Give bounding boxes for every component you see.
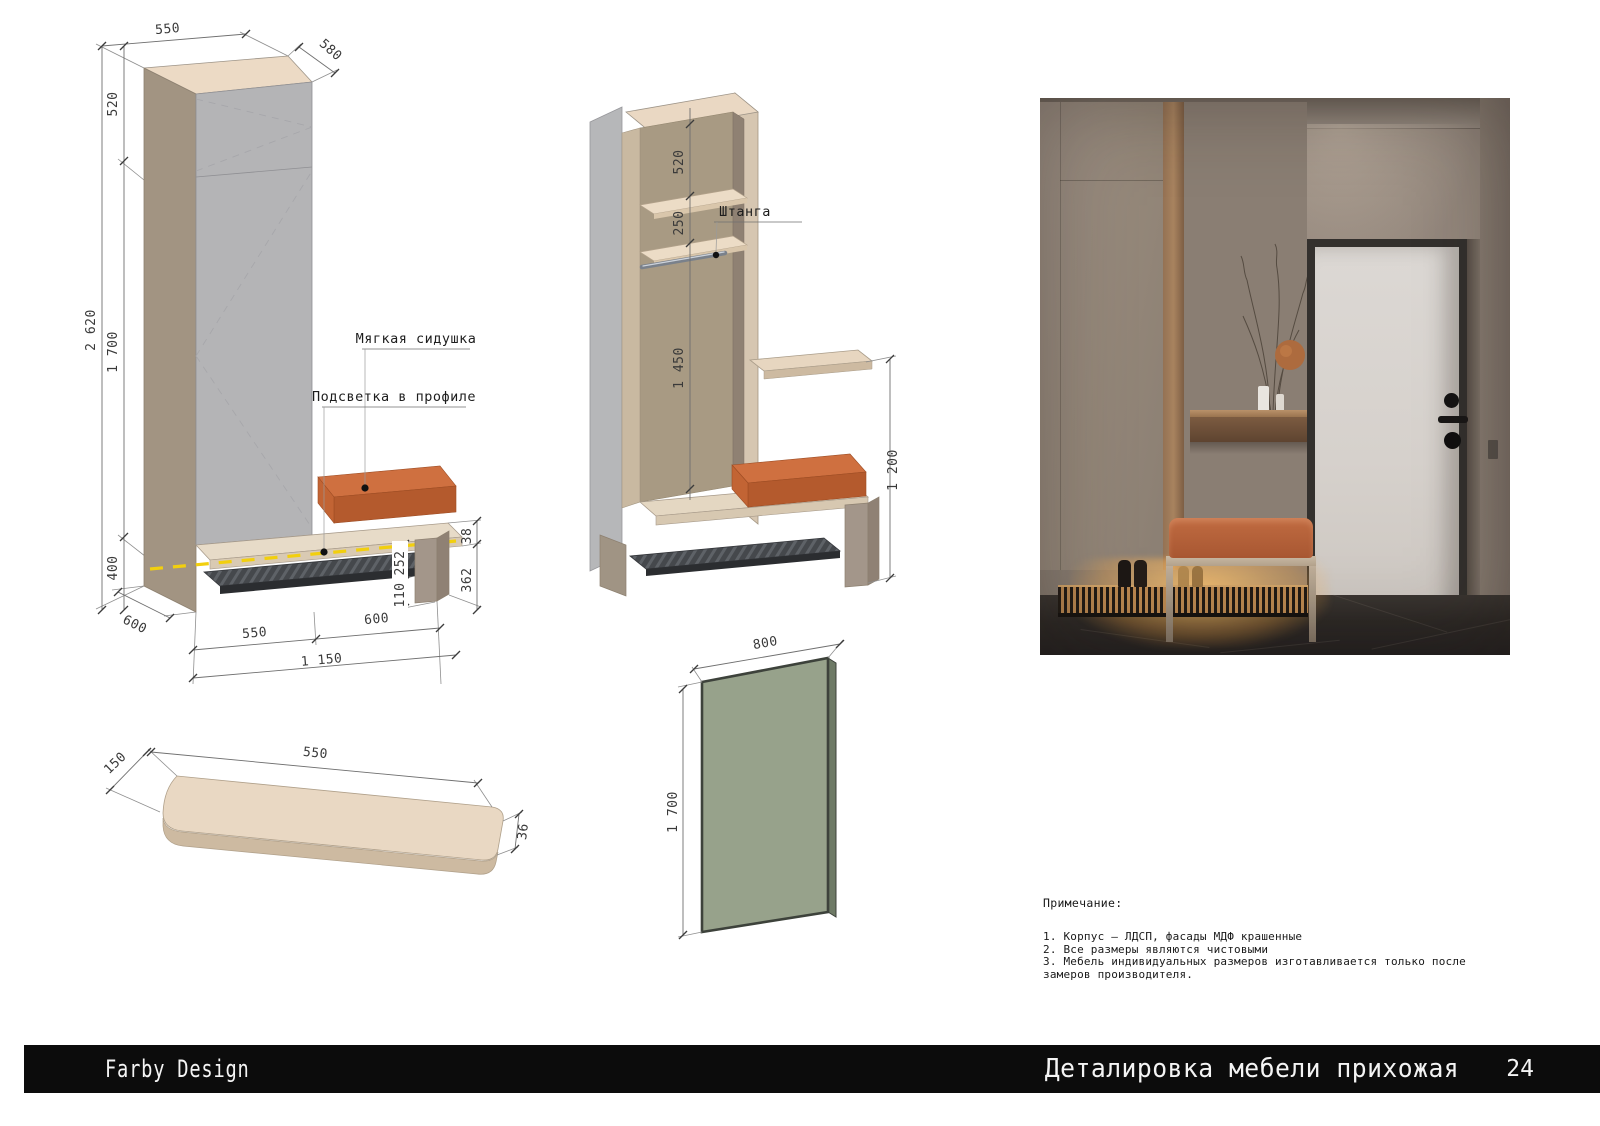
dim-second-shelf: 250: [672, 211, 687, 236]
svg-text:Штанга: Штанга: [719, 204, 771, 220]
drawing-shelf: 550 150 36: [90, 715, 550, 895]
dim-left-width: 550: [242, 625, 268, 642]
bench-cushion: [318, 466, 456, 523]
dim-total-width: 1 150: [300, 651, 343, 670]
dim-total-height: 2 620: [84, 309, 99, 351]
dim-bench-height: 362: [460, 568, 475, 593]
svg-text:252: 252: [393, 551, 408, 576]
dim-right-width: 600: [364, 611, 390, 628]
bench-right-panel: [845, 503, 868, 587]
note-line: 3. Мебель индивидуальных размеров изгота…: [1043, 956, 1513, 969]
note-line: 1. Корпус – ЛДСП, фасады МДФ крашенные: [1043, 931, 1513, 944]
dim-mirror-height: 1 700: [666, 791, 681, 833]
note-line: замеров производителя.: [1043, 969, 1513, 982]
bench-right-panel-edge: [868, 497, 879, 585]
dim-seat-thickness: 38: [460, 528, 475, 545]
dim-shelf-thickness: 36: [515, 822, 532, 840]
dim-top-width: 550: [155, 21, 181, 38]
notes-block: Примечание: 1. Корпус – ЛДСП, фасады МДФ…: [1043, 896, 1513, 981]
svg-text:110: 110: [393, 583, 408, 608]
dim-upper-height: 520: [106, 92, 121, 117]
dim-door-height: 1 700: [106, 331, 121, 373]
callout-soft-seat: Мягкая сидушка: [356, 331, 477, 492]
wardrobe-side-face: [144, 68, 196, 612]
drawing-wardrobe-front: 550 580 520 2 620 1 700 400 600 550 600 …: [55, 20, 525, 690]
dim-top-depth: 580: [316, 37, 345, 65]
footer-page-number: 24: [1506, 1056, 1534, 1082]
drawing-mirror: 800 1 700: [650, 630, 880, 960]
dim-shelf-depth: 150: [101, 749, 129, 777]
dim-shelf-to-floor: 1 200: [886, 449, 901, 491]
dim-shelf-length: 550: [302, 745, 328, 763]
cabinet-left-inner-wall: [622, 128, 640, 508]
floating-shelf: [750, 350, 872, 379]
dim-base-height: 400: [106, 556, 121, 581]
footer-title: Деталировка мебели прихожая: [1045, 1054, 1459, 1084]
bench-right-panel-edge: [437, 531, 449, 601]
dim-base-depth: 600: [120, 613, 149, 638]
wardrobe-front-face: [196, 82, 312, 545]
cabinet-right-inner-edge: [733, 112, 744, 486]
dim-mirror-width: 800: [752, 634, 779, 653]
notes-title: Примечание:: [1043, 896, 1513, 910]
photo-vignette: [1040, 98, 1510, 655]
shoe-shelf: [630, 538, 840, 576]
svg-text:Мягкая сидушка: Мягкая сидушка: [356, 331, 477, 347]
svg-text:Подсветка в профиле: Подсветка в профиле: [312, 389, 476, 405]
notes-list: 1. Корпус – ЛДСП, фасады МДФ крашенные 2…: [1043, 931, 1513, 981]
dim-upper-shelf: 520: [672, 150, 687, 175]
mirror-panel: [702, 658, 828, 932]
dim-shoe-shelf-offset: 110: [392, 575, 408, 615]
footer-brand: Farby Design: [105, 1055, 250, 1083]
base-left-panel: [600, 535, 626, 596]
render-photo: [1040, 98, 1510, 655]
footer-bar: Farby Design Деталировка мебели прихожая…: [24, 1045, 1600, 1093]
dim-hanging-height: 1 450: [672, 347, 687, 389]
gray-door-panel: [590, 107, 622, 571]
drawing-wardrobe-section: 520 250 1 450 1 200 Штанга: [555, 55, 975, 675]
bench-right-panel: [415, 538, 437, 603]
